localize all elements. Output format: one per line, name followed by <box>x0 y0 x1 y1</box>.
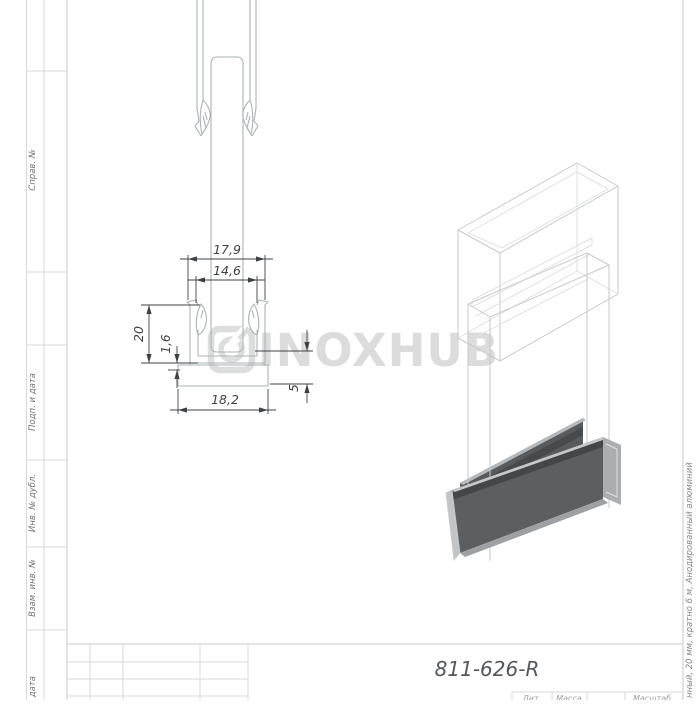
margin-note: нный, 20 мм, кратно 6 м, Анодированный а… <box>685 462 695 698</box>
corner-header-masshtab: Масштаб <box>633 694 671 700</box>
dim-base-width: 18,2 <box>170 389 276 414</box>
part-number: 811-626-R <box>435 657 540 681</box>
sidebar-label-podp-2: Подп. и дата <box>28 676 38 700</box>
watermark-text: INOXHUB <box>258 324 499 377</box>
sidebar-label-podp-1: Подп. и дата <box>28 373 38 431</box>
glass-panel <box>211 57 243 352</box>
svg-text:1,6: 1,6 <box>159 334 173 353</box>
dim-wall-thickness: 1,6 <box>159 334 180 388</box>
svg-text:17,9: 17,9 <box>213 242 241 257</box>
top-profile <box>195 0 258 136</box>
drawing-sheet: { "sidebar": { "labels": ["Справ. №", "П… <box>0 0 700 700</box>
sidebar-label-vzam-inv: Взам. инв. № <box>28 559 38 617</box>
svg-text:20: 20 <box>131 326 146 342</box>
title-block: 811-626-R Лит. Масса Масштаб <box>67 644 683 700</box>
sidebar-label-inv-dubl: Инв. № дубл. <box>28 474 38 532</box>
dim-slot-width: 14,6 <box>188 263 265 303</box>
svg-text:18,2: 18,2 <box>211 392 239 407</box>
svg-text:5: 5 <box>287 384 301 392</box>
svg-text:14,6: 14,6 <box>213 263 241 278</box>
corner-header-massa: Масса <box>556 694 582 700</box>
corner-header-lit: Лит. <box>522 694 541 700</box>
sidebar-label-sprav: Справ. № <box>28 149 38 191</box>
technical-drawing-canvas: INOXHUB Справ. № Подп. и дата Инв. № дуб… <box>0 0 700 700</box>
watermark: INOXHUB <box>211 324 499 377</box>
